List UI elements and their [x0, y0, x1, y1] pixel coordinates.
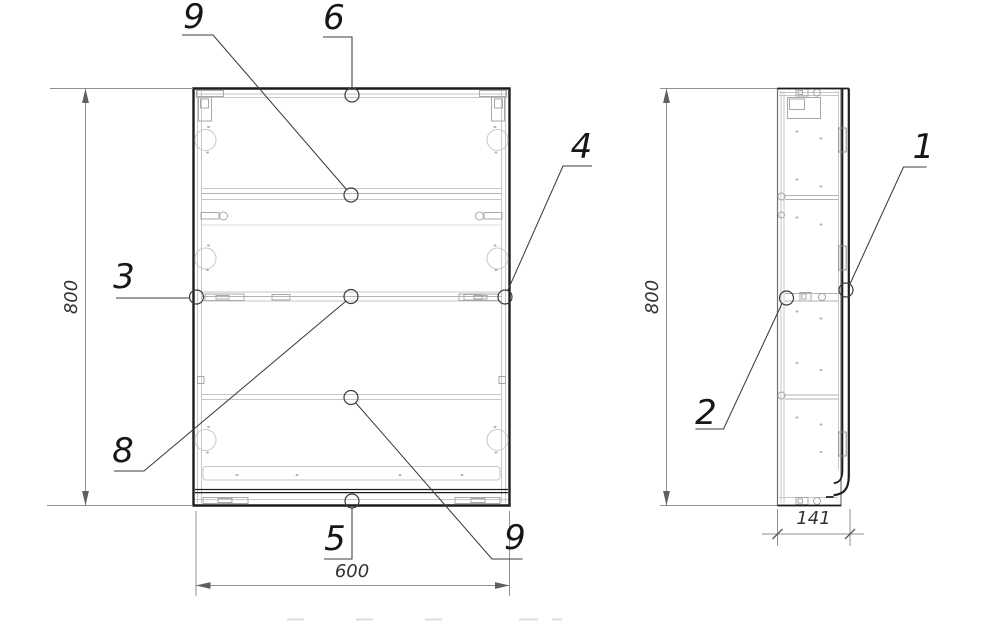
front-view	[194, 89, 510, 506]
drawing-canvas: 800 600 800 141 9	[0, 0, 1000, 621]
callout-label-side-panel: 2	[695, 393, 717, 433]
leader-4	[508, 166, 593, 291]
callout-label-shelf-top: 9	[183, 0, 205, 37]
leader-1	[850, 167, 927, 285]
side-height-extension-lines	[660, 89, 777, 506]
callout-label-door: 1	[913, 127, 935, 167]
callout-label-top-panel: 6	[323, 0, 345, 38]
technical-drawing: 800 600 800 141 9	[0, 0, 1000, 621]
side-depth-dim-text: 141	[796, 508, 830, 529]
callout-label-middle-shelf: 8	[112, 431, 134, 471]
callout-label-right-panel: 4	[571, 127, 593, 167]
callout-label-left-panel: 3	[113, 257, 135, 297]
front-width-extension-lines	[196, 511, 510, 596]
side-height-dim-text: 800	[642, 280, 663, 314]
side-cabinet-outline	[778, 89, 842, 506]
front-width-dim-text: 600	[335, 561, 369, 582]
side-view	[778, 89, 850, 506]
front-height-dim-text: 800	[61, 280, 82, 314]
callout-label-shelf-lower: 9	[504, 518, 526, 558]
leader-6	[323, 37, 352, 88]
callout-label-bottom-panel: 5	[324, 519, 346, 559]
